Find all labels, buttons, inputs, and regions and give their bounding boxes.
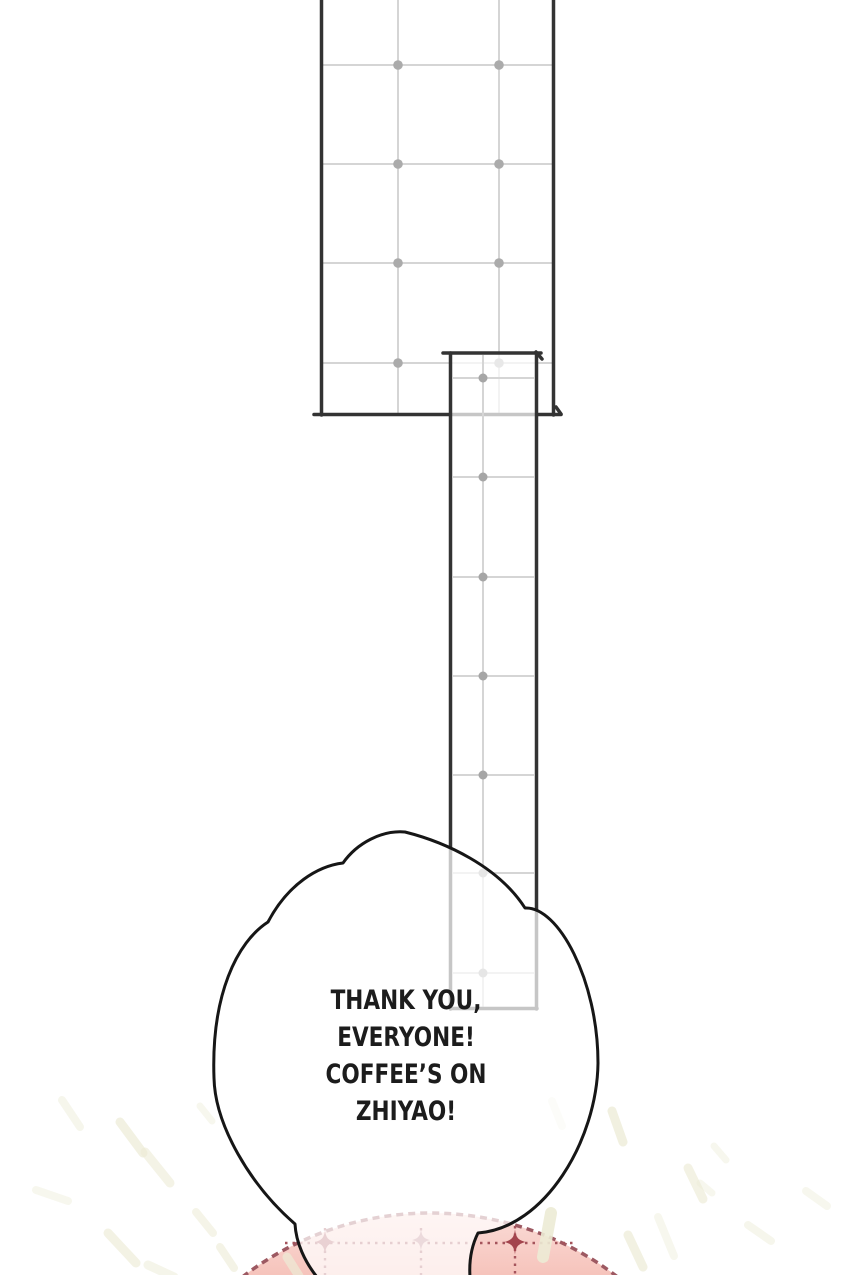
facade-grid-lines [323,0,552,413]
comic-page: THANK YOU, EVERYONE! COFFEE’S ON ZHIYAO! [0,0,850,1275]
facade-grid-dots [393,60,504,368]
speech-bubble [214,832,598,1275]
comic-panel-art [0,0,850,1275]
